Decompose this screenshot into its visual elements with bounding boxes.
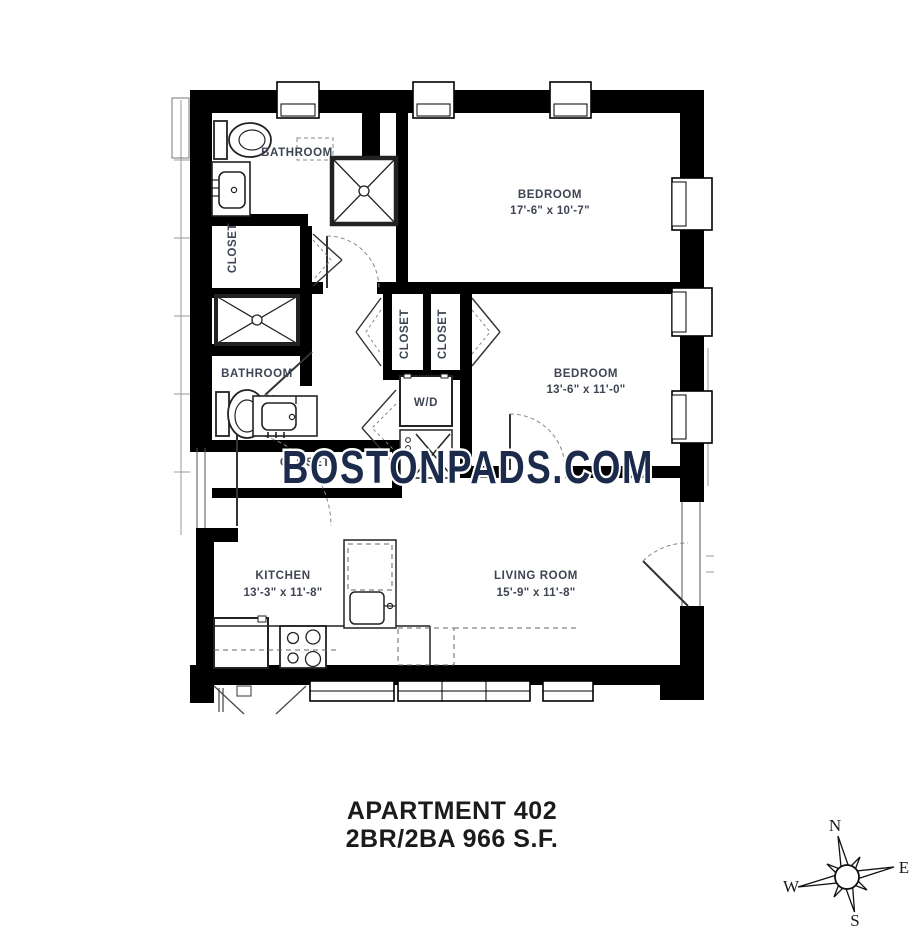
left-wall-window-gap	[197, 448, 205, 528]
wall-midcloset-mid	[423, 293, 431, 380]
room-label-closet-a: CLOSET	[399, 309, 411, 359]
room-label-bathroom2: BATHROOM	[221, 368, 293, 380]
entry-door-gap	[678, 502, 706, 606]
window-glyph-right-1	[672, 178, 712, 230]
plan-title: APARTMENT 402 2BR/2BA 966 S.F.	[346, 797, 559, 853]
wall-bed1-bottom-stub	[312, 282, 323, 294]
window-glyph-right-3	[672, 391, 712, 443]
compass-label-w: W	[783, 877, 800, 896]
stove-icon	[280, 626, 326, 668]
compass-label-n: N	[829, 816, 841, 835]
sink-icon-bath1	[212, 162, 250, 216]
fridge-icon	[214, 616, 268, 668]
compass-label-e: E	[899, 858, 909, 877]
room-label-bedroom1: BEDROOM	[518, 189, 582, 201]
closet-a-door-swing	[366, 310, 381, 354]
compass-label-s: S	[850, 911, 859, 928]
fixtures	[212, 121, 580, 668]
room-label-living: LIVING ROOM	[494, 570, 578, 582]
room-label-bathroom1: BATHROOM	[261, 147, 333, 159]
window-glyph-bottom-3	[543, 681, 593, 701]
wall-kitchen-top	[196, 528, 238, 542]
shower-icon-bath1	[332, 158, 396, 224]
room-dims-bedroom2: 13'-6" x 11'-0"	[546, 384, 625, 396]
sink-icon-bath2	[253, 396, 317, 438]
window-glyph-bottom-1	[310, 681, 394, 701]
plan-title-line1: APARTMENT 402	[347, 797, 557, 825]
bay-window-lines	[214, 686, 306, 714]
room-label-closet-entry: CLOSET	[227, 223, 239, 273]
wall-left-upper	[190, 90, 212, 448]
door-swing-vestibule	[327, 236, 379, 288]
wall-bottom-right-block	[660, 665, 704, 700]
compass-rose: N E W S	[783, 816, 909, 928]
wall-bed1-bottom	[377, 282, 704, 294]
floor-plan-page: BATHROOM CLOSET BEDROOM 17'-6" x 10'-7" …	[0, 0, 924, 928]
wall-shower2-right	[298, 296, 312, 344]
wall-bath2-right	[300, 344, 312, 386]
floor-plan-svg: BATHROOM CLOSET BEDROOM 17'-6" x 10'-7" …	[0, 0, 924, 928]
shower-icon-bath2	[216, 296, 298, 344]
window-glyph-right-2	[672, 288, 712, 336]
room-label-kitchen: KITCHEN	[255, 570, 310, 582]
wall-shower-stub	[362, 113, 380, 158]
wall-bottom-left-block	[190, 665, 214, 703]
room-label-closet-b: CLOSET	[437, 309, 449, 359]
window-glyph-bottom-2	[398, 681, 530, 701]
watermark-text: BOSTONPADS.COM	[282, 441, 654, 493]
window-glyph-top-1	[277, 82, 319, 118]
wall-midcloset-left	[383, 293, 392, 380]
room-label-bedroom2: BEDROOM	[554, 368, 618, 380]
plan-title-line2: 2BR/2BA 966 S.F.	[346, 825, 559, 853]
room-dims-bedroom1: 17'-6" x 10'-7"	[510, 205, 590, 217]
wall-closet-entry-right	[300, 226, 312, 292]
closet-entry-door-swing	[313, 240, 331, 280]
compass-hub	[835, 865, 859, 889]
room-dims-living: 15'-9" x 11'-8"	[496, 587, 575, 599]
room-dims-kitchen: 13'-3" x 11'-8"	[243, 587, 322, 599]
window-glyph-top-3	[550, 82, 591, 118]
wall-left-kitchen	[196, 528, 214, 678]
window-glyph-top-2	[413, 82, 454, 118]
room-label-laundry: W/D	[414, 397, 438, 409]
